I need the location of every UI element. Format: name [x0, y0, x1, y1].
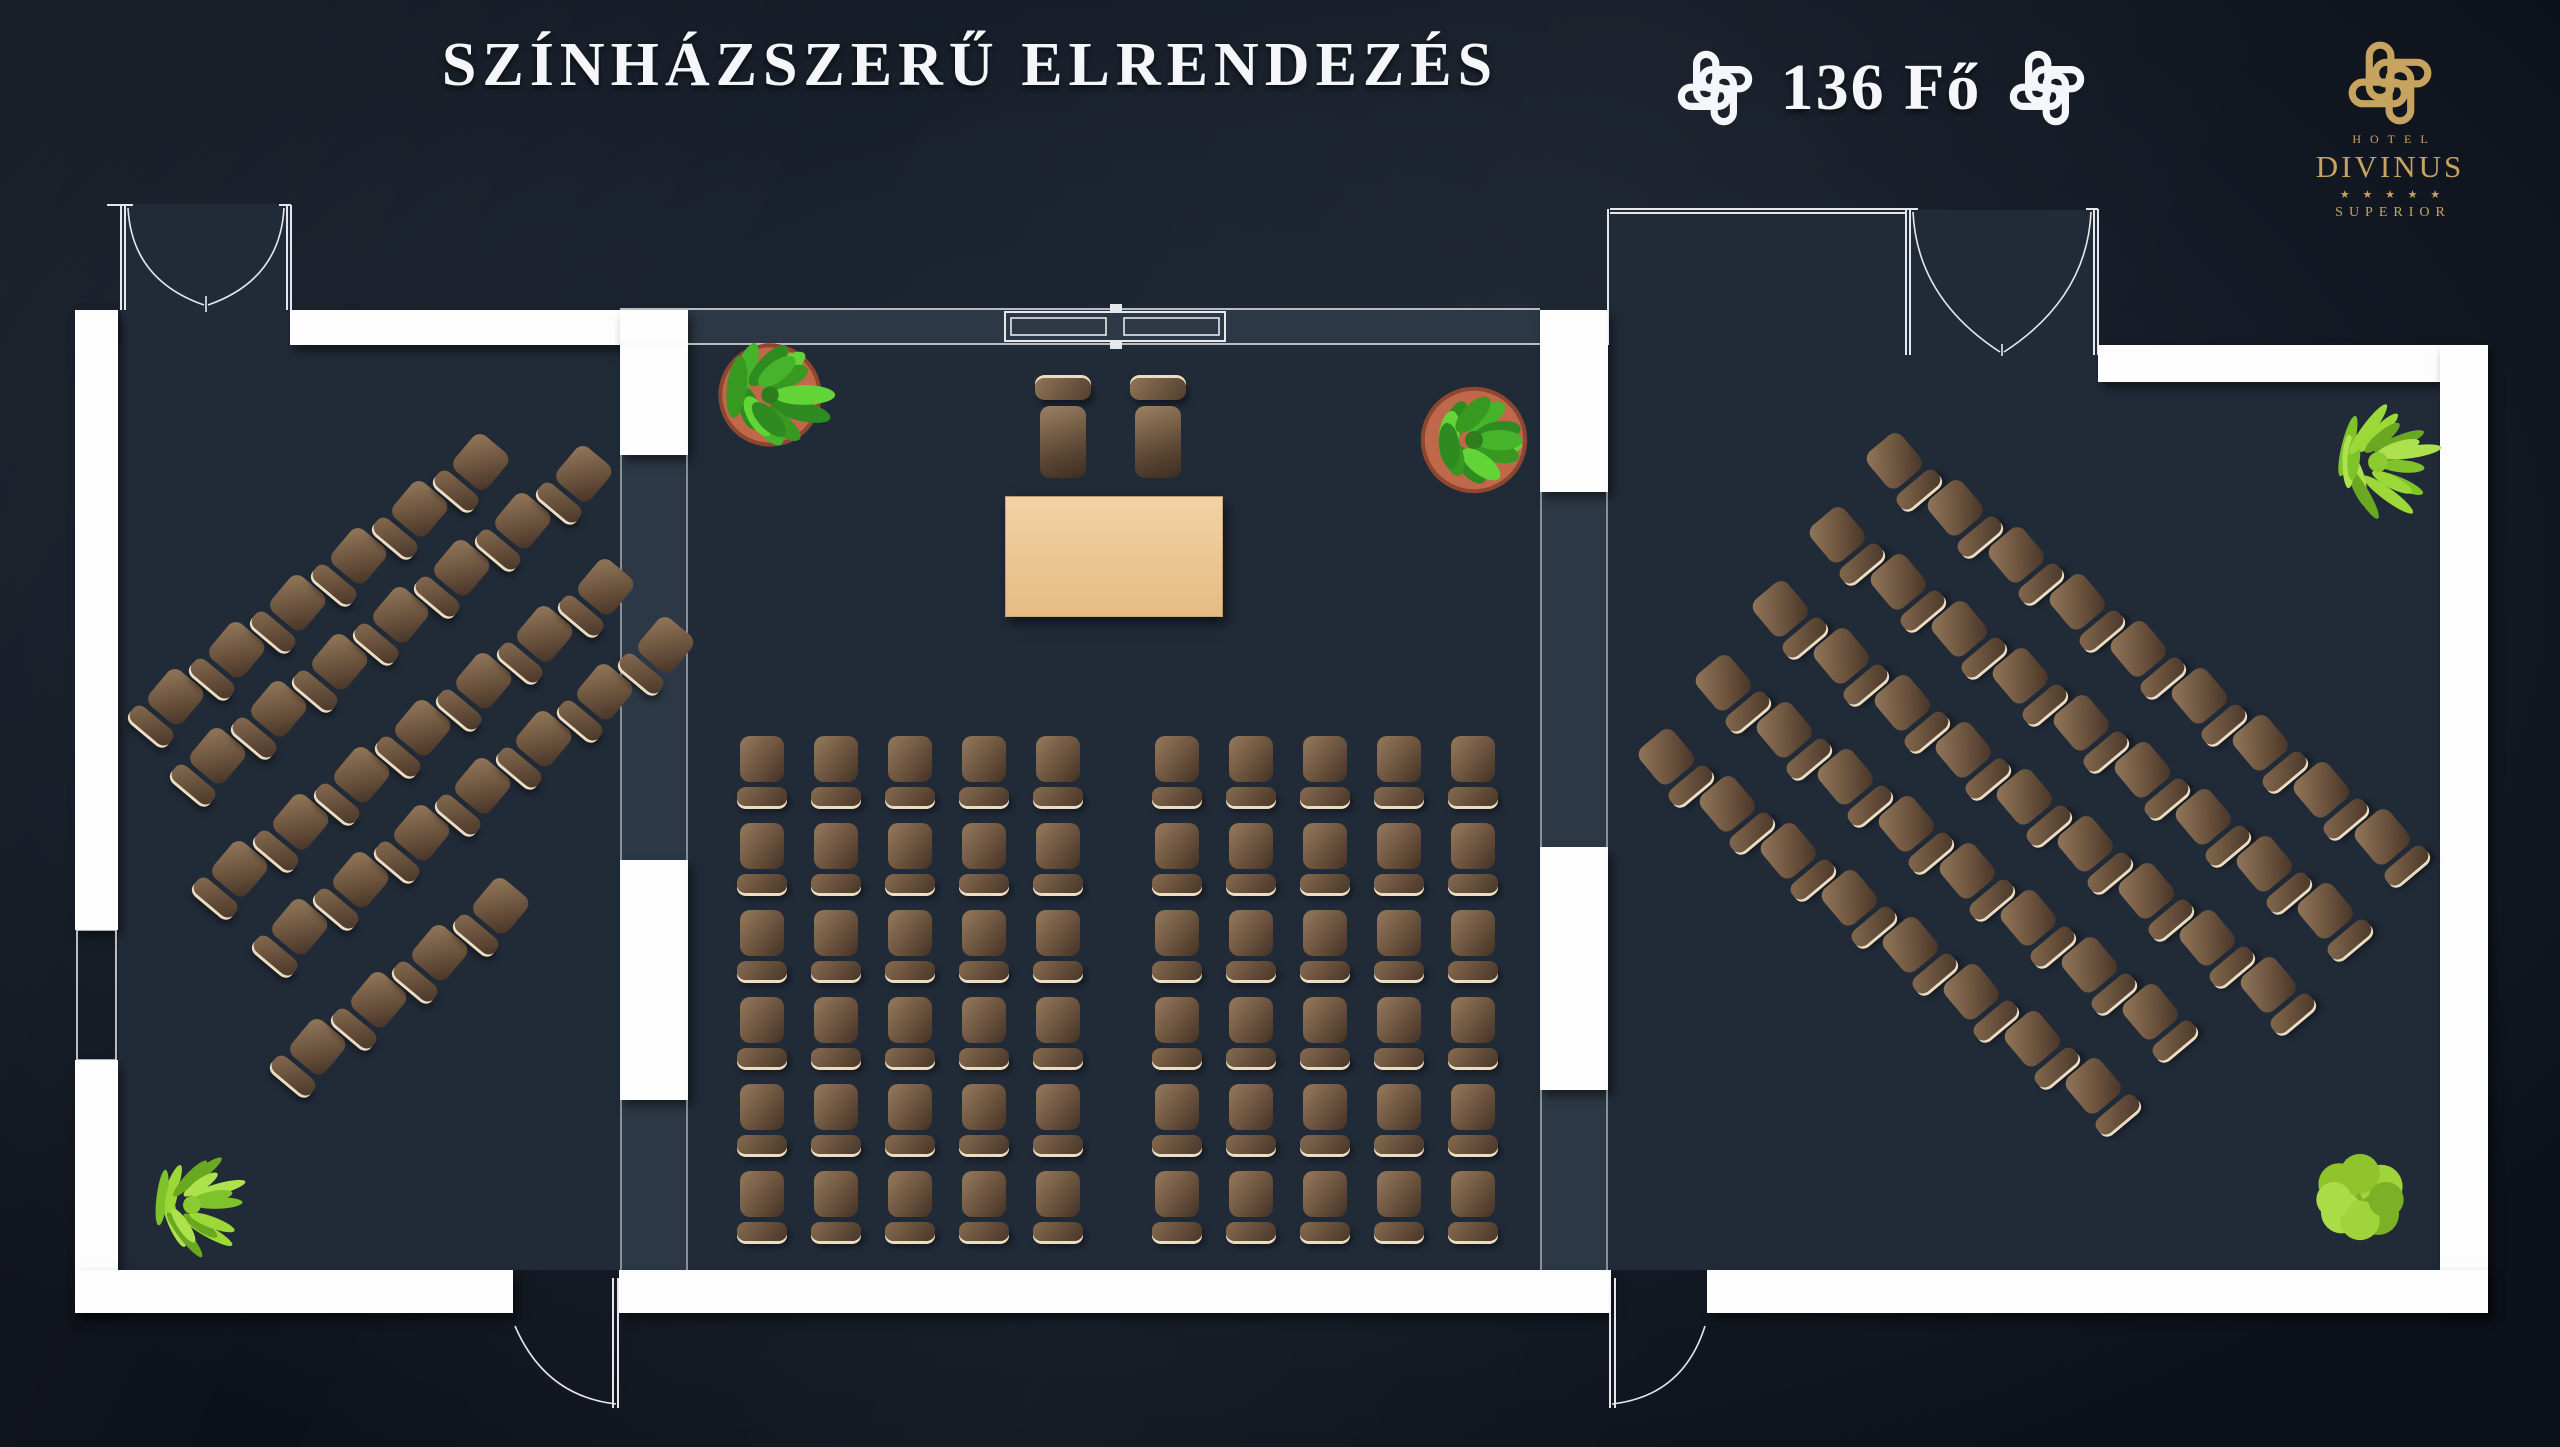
- celtic-knot-icon: [2007, 48, 2087, 128]
- logo-hotel-text: HOTEL: [2343, 132, 2436, 147]
- spiky-plant-icon: [126, 1139, 258, 1271]
- logo-superior-text: SUPERIOR: [2329, 205, 2451, 221]
- capacity-group: 136 Fő: [1636, 48, 2126, 128]
- capacity-label: 136 Fő: [1781, 50, 1982, 126]
- page-title: SZÍNHÁZSZERŰ ELRENDEZÉS: [330, 30, 1610, 101]
- spiky-plant-icon: [2306, 390, 2450, 534]
- potted-plant-icon: [698, 323, 842, 467]
- celtic-knot-icon: [1675, 48, 1755, 128]
- celtic-knot-gold-icon: [2345, 38, 2435, 128]
- potted-plant-icon: [1400, 366, 1548, 514]
- plants-layer: [0, 0, 2560, 1447]
- logo-name-text: DIVINUS: [2316, 149, 2464, 185]
- bush-plant-icon: [2298, 1135, 2422, 1259]
- logo-stars: ★ ★ ★ ★ ★: [2335, 188, 2445, 201]
- hotel-logo: HOTEL DIVINUS ★ ★ ★ ★ ★ SUPERIOR: [2290, 38, 2490, 221]
- floor-plan-canvas: SZÍNHÁZSZERŰ ELRENDEZÉS 136 Fő HOTEL DIV…: [0, 0, 2560, 1447]
